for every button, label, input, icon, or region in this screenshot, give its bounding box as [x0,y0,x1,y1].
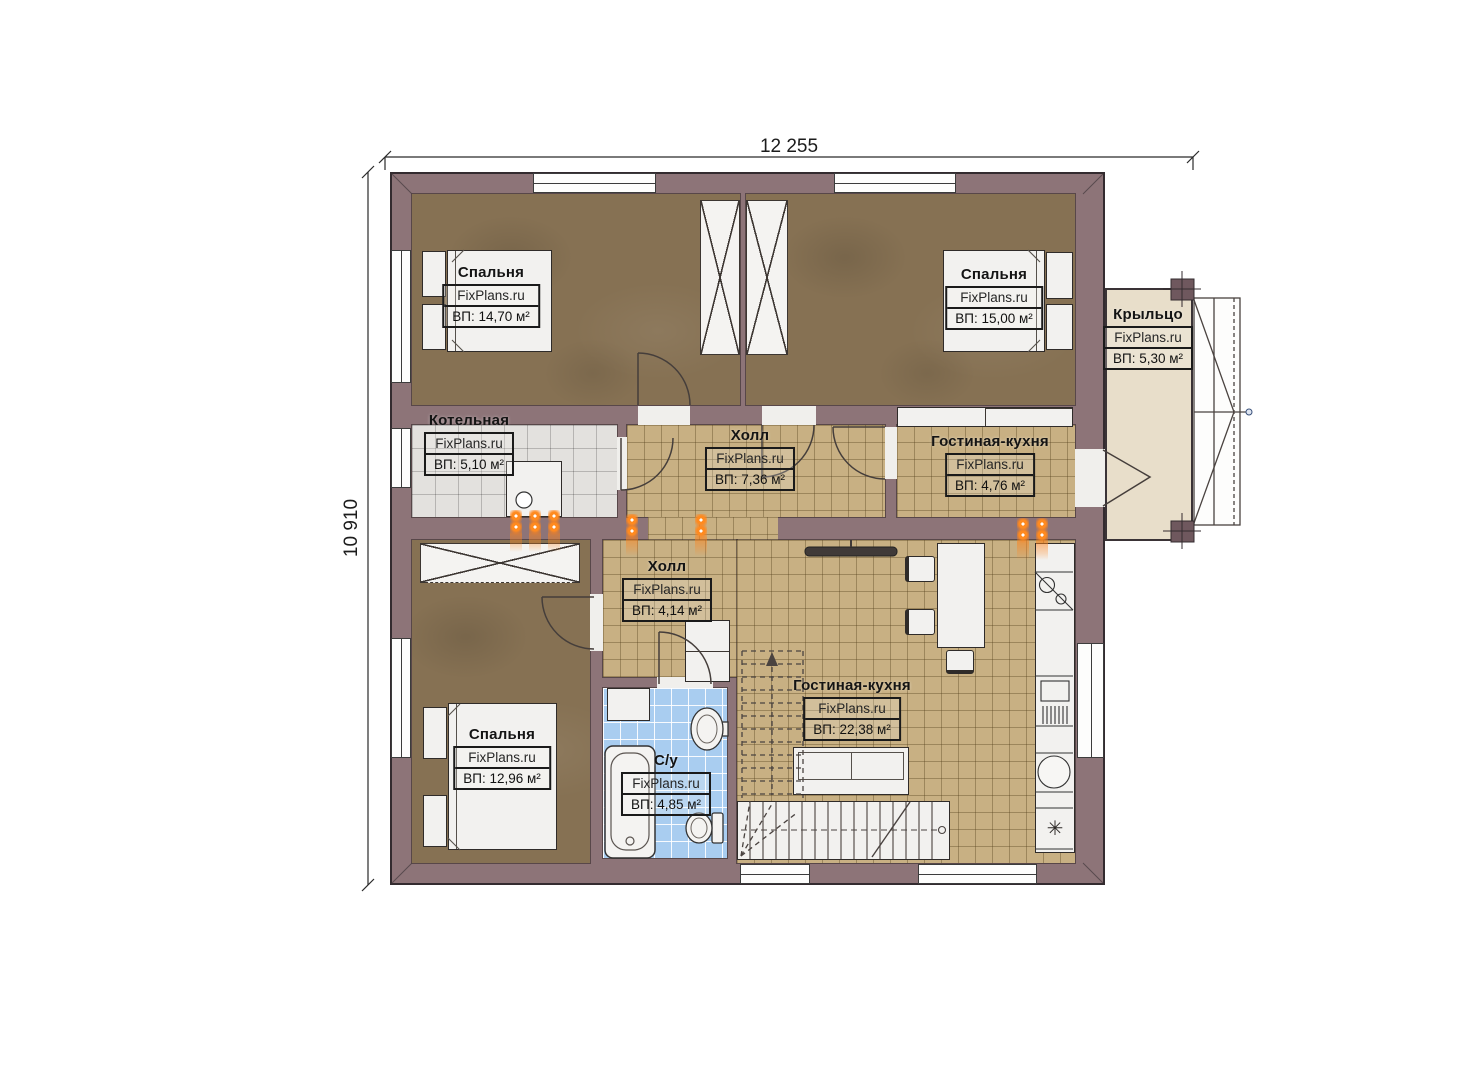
chair [905,609,935,635]
watermark-text: FixPlans.ru [444,286,538,307]
room-label-hall-lower: Холл FixPlans.ru ВП: 4,14 м² [622,558,712,622]
floor-plan-canvas: ✳ [0,0,1473,1080]
wardrobe-bedroom-bottom [420,543,580,583]
dimension-width-label: 12 255 [760,136,818,158]
room-name: Гостиная-кухня [931,433,1049,450]
window-left-bedroom [391,250,411,383]
window-bottom-right [918,864,1037,884]
nightstand [423,795,447,847]
room-name: Крыльцо [1103,306,1193,323]
wardrobe-top-left [700,200,740,355]
room-name: Спальня [945,266,1043,283]
watermark-text: FixPlans.ru [1105,328,1191,349]
dimension-height-label: 10 910 [341,499,363,557]
room-label-bathroom: С/у FixPlans.ru ВП: 4,85 м² [621,752,711,816]
room-label-living-kitchen-entry: Гостиная-кухня FixPlans.ru ВП: 4,76 м² [931,433,1049,497]
room-label-boiler: Котельная FixPlans.ru ВП: 5,10 м² [424,412,514,476]
window-top-left [533,173,656,193]
staircase-lower-flight [737,801,950,860]
sofa [793,747,909,795]
room-label-bedroom-top-left: Спальня FixPlans.ru ВП: 14,70 м² [442,264,540,328]
sofa-cushions [798,752,904,780]
room-area: ВП: 4,85 м² [623,795,709,814]
chair [946,650,974,674]
dining-table [937,543,985,648]
room-label-bedroom-top-right: Спальня FixPlans.ru ВП: 15,00 м² [945,266,1043,330]
room-area: ВП: 4,76 м² [947,476,1033,495]
room-name: Холл [622,558,712,575]
room-area: ВП: 5,10 м² [426,455,512,474]
kitchen-counter [1035,543,1075,853]
boiler-unit-icon [506,461,562,517]
room-name: Гостиная-кухня [793,677,911,694]
window-left-bedroom-bottom [391,638,411,758]
watermark-text: FixPlans.ru [947,455,1033,476]
door-opening-bedroom-top-right [762,406,816,425]
wardrobe-top-right [746,200,788,355]
room-name: Спальня [442,264,540,281]
watermark-text: FixPlans.ru [623,774,709,795]
window-top-right [834,173,956,193]
door-opening-bedroom-top-left [638,406,690,425]
room-area: ВП: 5,30 м² [1105,349,1191,368]
room-label-hall-upper: Холл FixPlans.ru ВП: 7,36 м² [705,427,795,491]
window-right-kitchen [1077,643,1104,758]
watermark-text: FixPlans.ru [947,288,1041,309]
floor-opening-passage [648,517,778,540]
watermark-text: FixPlans.ru [624,580,710,601]
room-area: ВП: 4,14 м² [624,601,710,620]
window-bottom-left [740,864,810,884]
room-name: Котельная [424,412,514,429]
nightstand [423,707,447,759]
room-area: ВП: 7,36 м² [707,470,793,489]
door-opening-porch [1075,449,1105,507]
door-opening-bedroom-bottom [590,594,603,651]
door-opening-boiler [617,437,627,490]
room-area: ВП: 12,96 м² [455,769,549,788]
fridge-icon: ✳ [1037,809,1073,848]
watermark-text: FixPlans.ru [805,699,899,720]
nightstand [1046,252,1073,299]
nightstand [1046,304,1073,350]
room-area: ВП: 15,00 м² [947,309,1041,328]
watermark-text: FixPlans.ru [426,434,512,455]
watermark-text: FixPlans.ru [707,449,793,470]
room-name: Холл [705,427,795,444]
window-left-boiler [391,428,411,488]
room-label-porch: Крыльцо FixPlans.ru ВП: 5,30 м² [1103,306,1193,370]
room-label-bedroom-bottom-left: Спальня FixPlans.ru ВП: 12,96 м² [453,726,551,790]
closet-entry [897,407,1073,427]
washing-machine-icon [607,688,650,721]
door-opening-hall-entry [885,427,897,479]
room-name: С/у [621,752,711,769]
chair [905,556,935,582]
room-name: Спальня [453,726,551,743]
room-label-living-kitchen: Гостиная-кухня FixPlans.ru ВП: 22,38 м² [793,677,911,741]
closet-hall-lower [685,620,730,682]
room-area: ВП: 14,70 м² [444,307,538,326]
room-area: ВП: 22,38 м² [805,720,899,739]
watermark-text: FixPlans.ru [455,748,549,769]
